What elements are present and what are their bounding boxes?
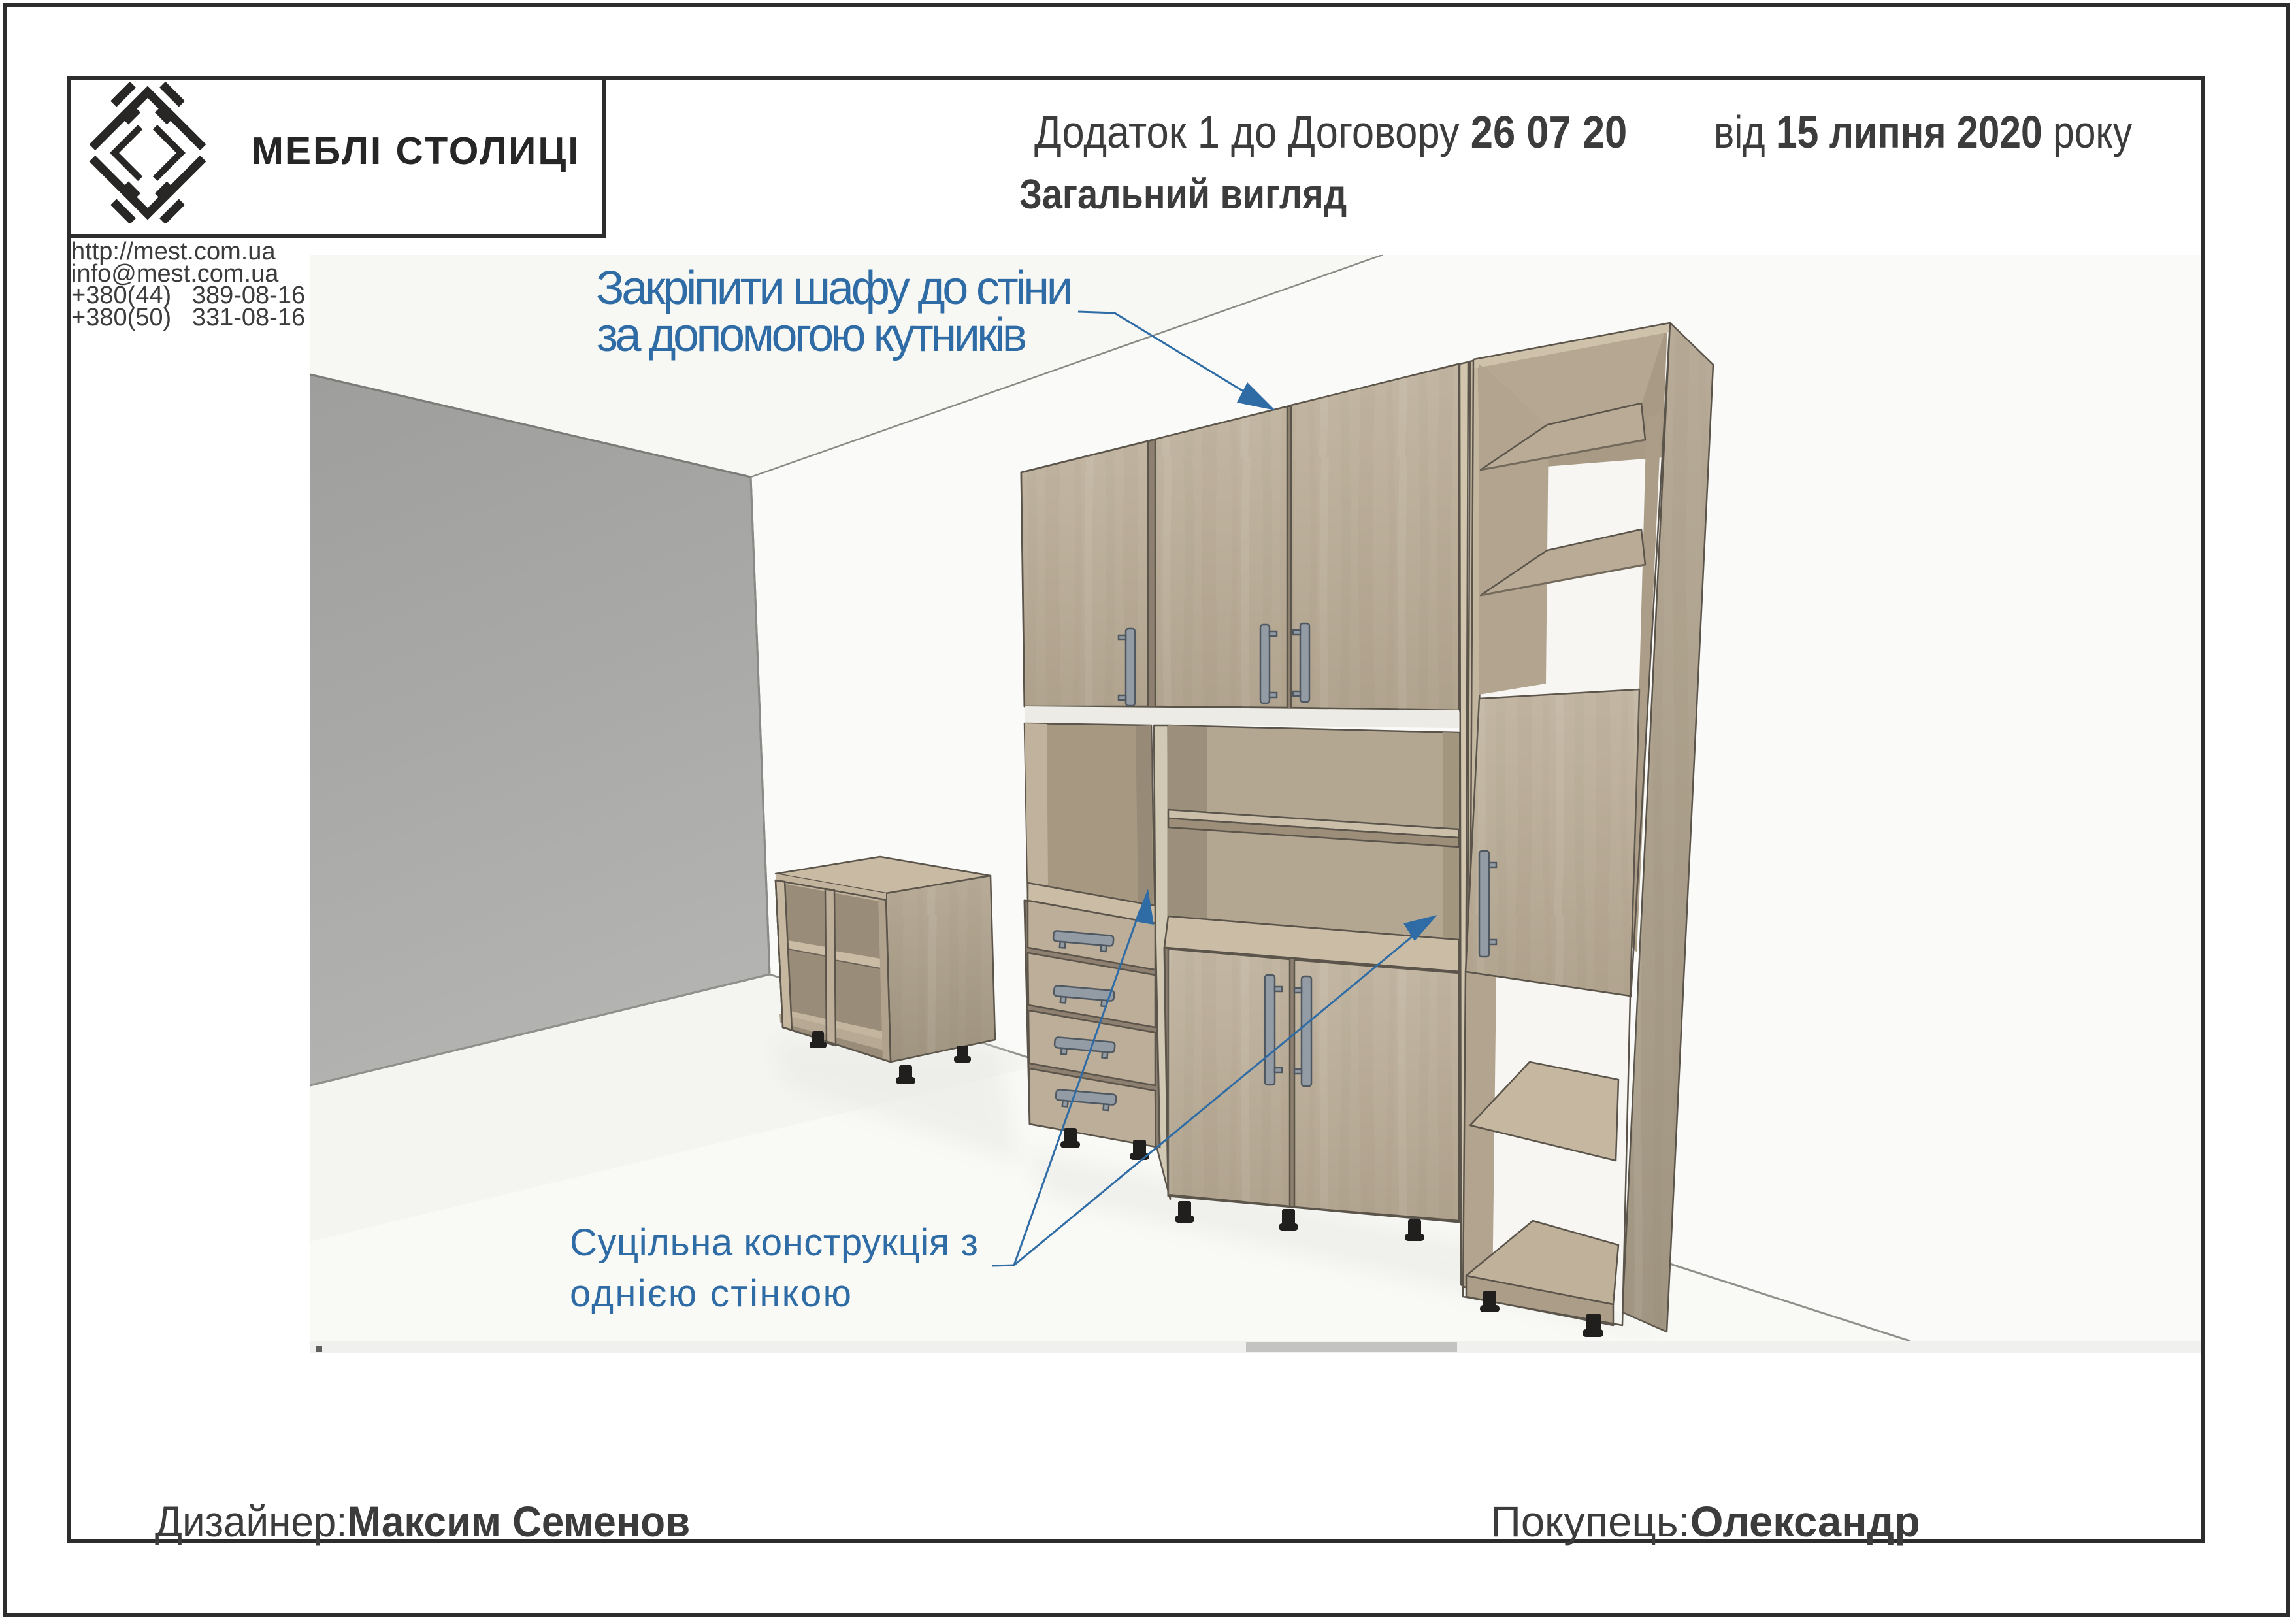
svg-text:за допомогою кутників: за допомогою кутників <box>597 309 1027 361</box>
svg-text:однією стінкою: однією стінкою <box>570 1272 851 1315</box>
svg-text:Суцільна конструкція з: Суцільна конструкція з <box>570 1221 978 1264</box>
svg-text:Закріпити шафу до стіни: Закріпити шафу до стіни <box>596 262 1073 314</box>
